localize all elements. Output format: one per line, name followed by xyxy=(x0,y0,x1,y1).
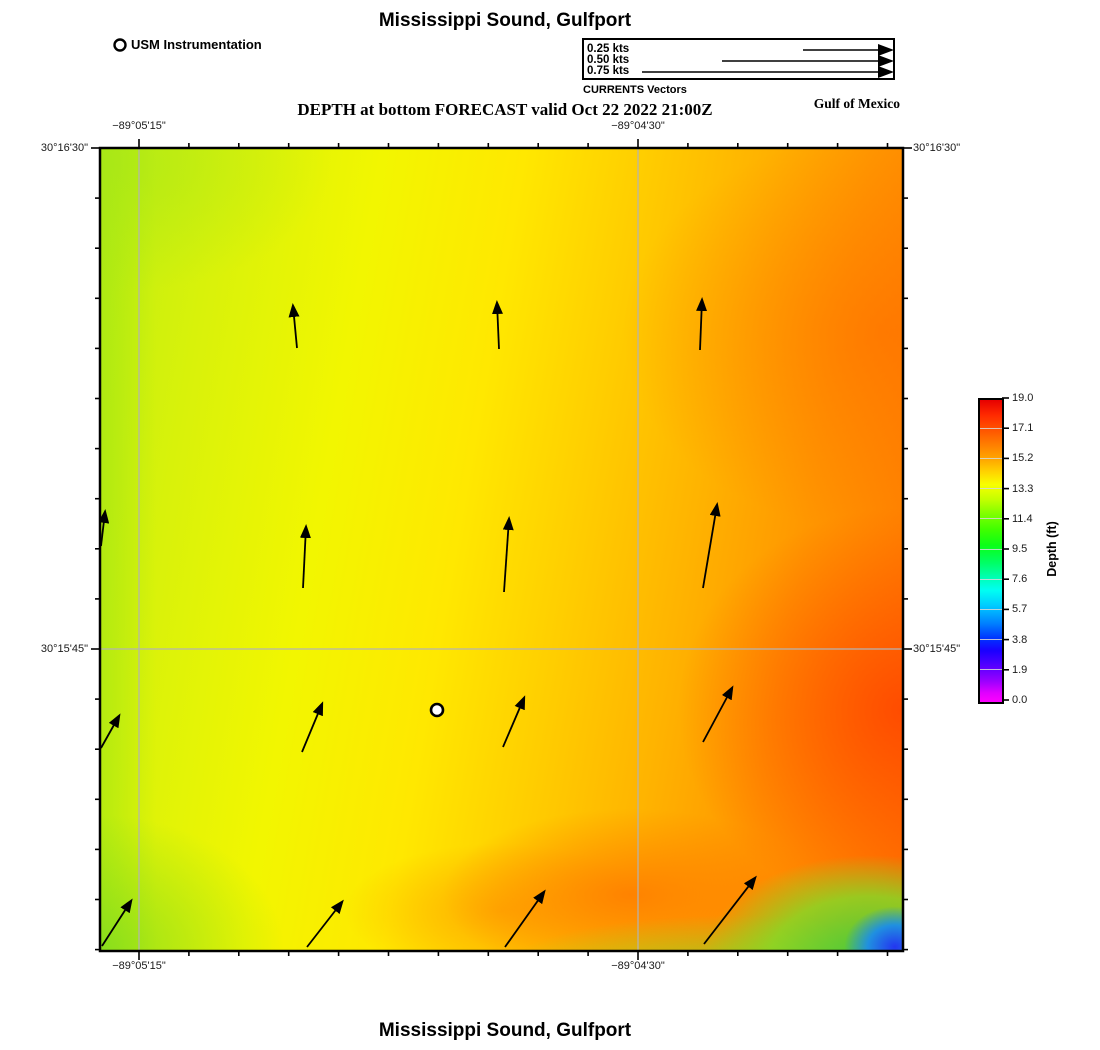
usm-marker-icon xyxy=(112,37,128,53)
colorbar-tick-label: 0.0 xyxy=(1012,694,1052,706)
currents-vectors-caption: CURRENTS Vectors xyxy=(583,84,687,96)
colorbar-gridline xyxy=(980,458,1002,459)
colorbar-tick-label: 17.1 xyxy=(1012,422,1052,434)
colorbar-gridline xyxy=(980,579,1002,580)
colorbar-gridline xyxy=(980,488,1002,489)
colorbar-gridline xyxy=(980,609,1002,610)
colorbar-title: Depth (ft) xyxy=(1045,521,1059,577)
colorbar-gradient xyxy=(978,398,1004,704)
colorbar-gridline xyxy=(980,639,1002,640)
lat-label-left-north: 30°16'30" xyxy=(6,142,88,154)
page-title: Mississippi Sound, Gulfport xyxy=(105,10,905,32)
lon-label-bottom-east: −89°04'30" xyxy=(578,960,698,972)
lon-label-bottom-west: −89°05'15" xyxy=(79,960,199,972)
colorbar-gridline xyxy=(980,549,1002,550)
colorbar-gridline xyxy=(980,518,1002,519)
bottom-page-title: Mississippi Sound, Gulfport xyxy=(105,1020,905,1042)
colorbar-gridline xyxy=(980,428,1002,429)
lon-label-top-west: −89°05'15" xyxy=(79,120,199,132)
usm-legend-label: USM Instrumentation xyxy=(131,37,262,52)
lat-label-right-mid: 30°15'45" xyxy=(913,643,960,655)
colorbar-gridline xyxy=(980,669,1002,670)
colorbar-tick-label: 1.9 xyxy=(1012,664,1052,676)
colorbar-tick-label: 5.7 xyxy=(1012,603,1052,615)
colorbar-tick-label: 15.2 xyxy=(1012,452,1052,464)
depth-heatmap xyxy=(100,148,903,951)
colorbar-tick-label: 19.0 xyxy=(1012,392,1052,404)
region-label: Gulf of Mexico xyxy=(760,96,900,112)
vector-legend-entry-label: 0.75 kts xyxy=(587,66,629,77)
colorbar-tick-label: 13.3 xyxy=(1012,483,1052,495)
forecast-plot-page: Mississippi Sound, Gulfport DEPTH at bot… xyxy=(0,0,1100,1050)
lat-label-right-north: 30°16'30" xyxy=(913,142,960,154)
colorbar-tick-label: 3.8 xyxy=(1012,634,1052,646)
lon-label-top-east: −89°04'30" xyxy=(578,120,698,132)
lat-label-left-mid: 30°15'45" xyxy=(6,643,88,655)
